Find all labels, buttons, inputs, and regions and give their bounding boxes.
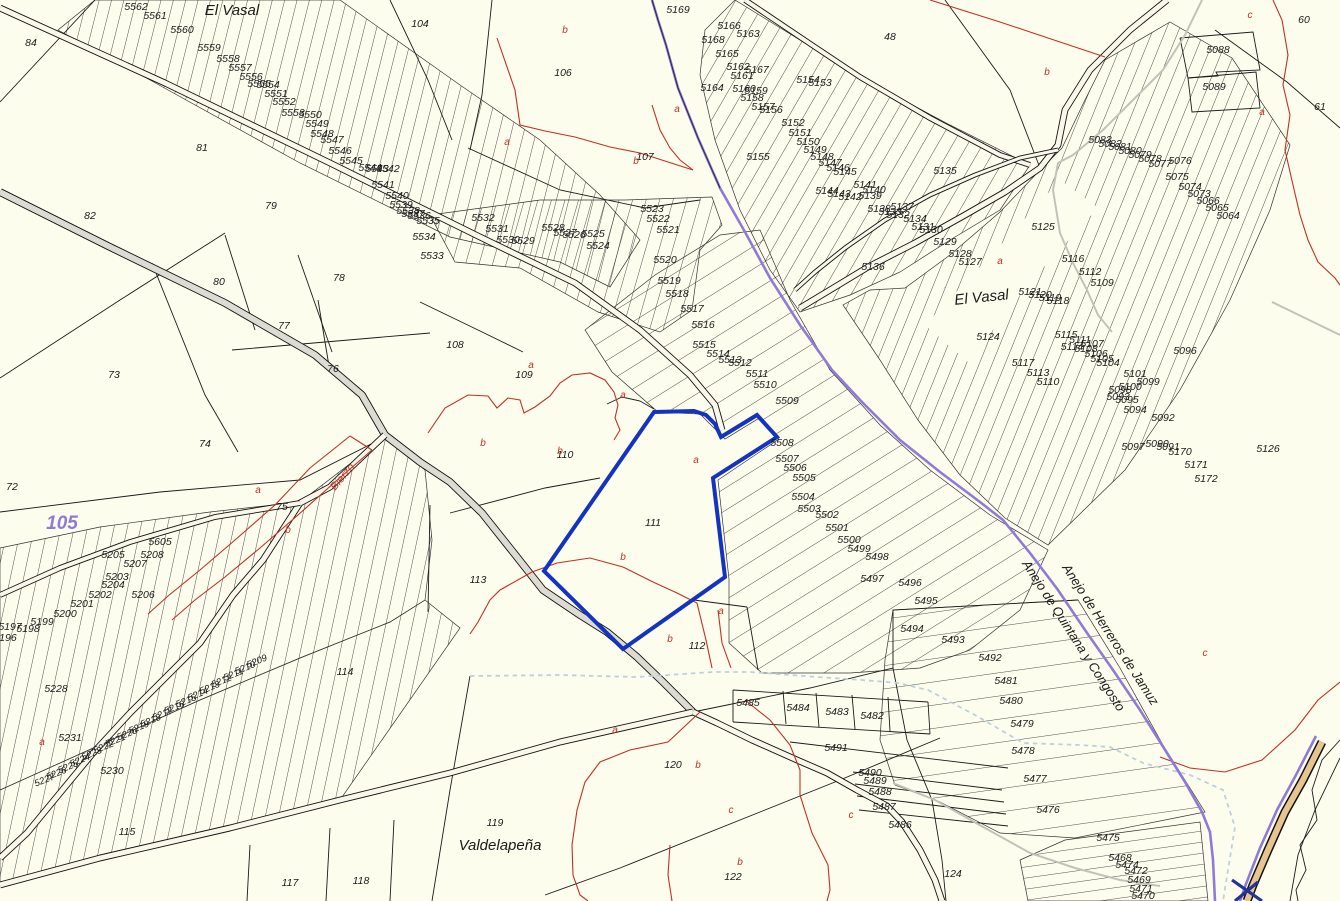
parcel-label-5495: 5495 (914, 595, 938, 607)
parcel-boundary-line (816, 693, 819, 727)
parcel-label-5064: 5064 (1216, 210, 1240, 222)
parcel-label-5156: 5156 (759, 104, 783, 116)
parcel-label-5090: 5090 (1145, 438, 1169, 450)
parcel-label-73: 73 (108, 369, 120, 381)
parcel-label-5230: 5230 (100, 765, 124, 777)
parcel-label-5205: 5205 (101, 549, 125, 561)
parcel-label-104: 104 (411, 18, 429, 30)
parcel-label-5168: 5168 (701, 34, 725, 46)
track-path (1272, 302, 1340, 335)
parcel-label-5529: 5529 (511, 235, 535, 247)
parcel-label-5118: 5118 (1047, 295, 1070, 307)
parcel-label-5561: 5561 (143, 10, 166, 22)
parcel-label-5517: 5517 (680, 303, 705, 315)
parcel-label-5096: 5096 (1173, 345, 1197, 357)
parcel-label-5228: 5228 (44, 683, 68, 695)
place-name-label: El Vasal (205, 2, 260, 19)
parcel-label-5481: 5481 (994, 675, 1017, 687)
parcel-boundary-line (1290, 758, 1340, 901)
parcel-label-5535: 5535 (416, 215, 440, 227)
parcel-label-5498: 5498 (865, 551, 889, 563)
parcel-label-5508: 5508 (770, 437, 794, 449)
parcel-boundary-line (232, 333, 430, 350)
parcel-boundary-line (390, 820, 394, 901)
subclass-boundary-line (652, 105, 693, 170)
parcel-label-5104: 5104 (1096, 357, 1120, 369)
parcel-label-5129: 5129 (933, 236, 957, 248)
parcel-label-122: 122 (724, 871, 742, 883)
parcel-label-5207: 5207 (123, 558, 148, 570)
parcel-label-5525: 5525 (581, 228, 605, 240)
parcel-label-61: 61 (1314, 101, 1326, 113)
parcel-label-84: 84 (25, 37, 37, 49)
subclass-letter-a: a (528, 360, 534, 371)
parcel-label-106: 106 (554, 67, 572, 79)
parcel-label-5510: 5510 (753, 379, 777, 391)
parcel-label-5164: 5164 (700, 82, 724, 94)
parcel-label-5477: 5477 (1023, 773, 1048, 785)
subclass-letter-a: a (997, 256, 1003, 267)
parcel-label-5130: 5130 (919, 224, 943, 236)
parcel-label-5501: 5501 (825, 522, 848, 534)
parcel-label-5497: 5497 (860, 573, 885, 585)
parcel-label-119: 119 (487, 817, 504, 829)
parcel-label-48: 48 (884, 31, 896, 43)
parcel-label-5116: 5116 (1062, 253, 1085, 265)
parcel-label-5560: 5560 (170, 24, 194, 36)
parcel-boundary-line (432, 676, 470, 901)
parcel-boundary-line (545, 738, 940, 895)
parcel-label-5076: 5076 (1168, 155, 1192, 167)
parcel-label-5126: 5126 (1256, 443, 1280, 455)
parcel-label-5516: 5516 (691, 319, 715, 331)
parcel-label-5504: 5504 (791, 491, 815, 503)
parcel-label-5088: 5088 (1206, 44, 1230, 56)
parcel-label-5502: 5502 (815, 509, 839, 521)
parcel-label-108: 108 (446, 339, 464, 351)
parcel-label-60: 60 (1298, 14, 1310, 26)
subclass-letter-a: a (693, 455, 699, 466)
parcel-label-5509: 5509 (775, 395, 799, 407)
parcel-label-5098: 5098 (1108, 384, 1132, 396)
parcel-label-5097: 5097 (1121, 441, 1146, 453)
subclass-letter-a: a (674, 104, 680, 115)
parcel-label-5231: 5231 (58, 732, 81, 744)
parcel-label-5171: 5171 (1184, 459, 1207, 471)
subclass-boundary-line (428, 373, 620, 440)
parcel-label-75: 75 (276, 501, 288, 513)
parcel-label-5161: 5161 (730, 70, 753, 82)
parcel-label-5520: 5520 (653, 254, 677, 266)
subclass-letter-b: b (695, 760, 701, 771)
subclass-letter-c: c (1248, 10, 1253, 21)
parcel-label-5485: 5485 (736, 697, 760, 709)
parcel-label-5491: 5491 (824, 742, 847, 754)
parcel-label-115: 115 (119, 826, 136, 838)
parcel-label-111: 111 (645, 517, 661, 529)
subclass-letter-b: b (620, 552, 626, 563)
parcel-label-5124: 5124 (976, 331, 1000, 343)
parcel-label-78: 78 (333, 272, 345, 284)
subclass-letter-b: b (480, 438, 486, 449)
parcel-label-5492: 5492 (978, 652, 1002, 664)
parcel-label-5494: 5494 (900, 623, 924, 635)
subclass-letter-c: c (849, 810, 854, 821)
parcel-label-5206: 5206 (131, 589, 155, 601)
parcel-label-77: 77 (278, 320, 291, 332)
parcel-label-5533: 5533 (420, 250, 444, 262)
parcel-label-120: 120 (664, 759, 682, 771)
map-viewport[interactable]: 8410410610781827980787776737472751081091… (0, 0, 1340, 901)
parcel-label-5487: 5487 (872, 801, 897, 813)
subclass-boundary-line (350, 436, 372, 450)
subclass-letter-a: a (612, 725, 618, 736)
parcel-label-76: 76 (327, 363, 339, 375)
parcel-label-5137: 5137 (890, 201, 915, 213)
parcel-label-5519: 5519 (657, 275, 681, 287)
subclass-letter-b: b (633, 156, 639, 167)
parcel-label-107: 107 (636, 151, 655, 163)
parcel-label-82: 82 (84, 210, 96, 222)
parcel-label-5101: 5101 (1123, 368, 1146, 380)
parcel-label-5480: 5480 (999, 695, 1023, 707)
parcel-label-5478: 5478 (1011, 745, 1035, 757)
parcel-label-5488: 5488 (868, 786, 892, 798)
parcel-label-5110: 5110 (1037, 376, 1060, 388)
parcel-label-5534: 5534 (412, 231, 436, 243)
subclass-letter-a: a (620, 390, 626, 401)
parcel-label-5524: 5524 (586, 240, 610, 252)
subclass-letter-c: c (1203, 648, 1208, 659)
parcel-label-5196: 5196 (0, 632, 17, 644)
subclass-letter-a: a (718, 606, 724, 617)
parcel-label-5135: 5135 (933, 165, 957, 177)
parcel-label-5521: 5521 (656, 224, 679, 236)
subclass-letter-b: b (557, 446, 563, 457)
parcel-boundary-line (852, 695, 855, 729)
parcel-label-117: 117 (282, 877, 300, 889)
parcel-label-5493: 5493 (941, 634, 965, 646)
parcel-label-5155: 5155 (746, 151, 770, 163)
parcel-label-79: 79 (265, 200, 277, 212)
parcel-label-5127: 5127 (958, 256, 983, 268)
place-name-label: 105 (46, 513, 78, 534)
parcel-label-5484: 5484 (786, 702, 810, 714)
subclass-letter-a: a (1259, 107, 1265, 118)
parcel-boundary-line (326, 828, 330, 901)
subclass-letter-b: b (737, 857, 743, 868)
parcel-label-5109: 5109 (1090, 277, 1114, 289)
parcel-label-114: 114 (337, 666, 354, 678)
parcel-label-5483: 5483 (825, 706, 849, 718)
parcel-label-5125: 5125 (1031, 221, 1055, 233)
parcel-label-118: 118 (353, 875, 370, 887)
parcel-label-5505: 5505 (792, 472, 816, 484)
parcel-boundary-line (0, 233, 225, 378)
parcel-label-5145: 5145 (833, 166, 857, 178)
parcel-boundary-line (298, 255, 332, 352)
subclass-letter-a: a (504, 137, 510, 148)
parcel-label-5542: 5542 (376, 163, 400, 175)
subclass-letter-b: b (285, 525, 291, 536)
parcel-label-5136: 5136 (861, 261, 885, 273)
parcel-label-5551: 5551 (264, 88, 287, 100)
parcel-label-5482: 5482 (860, 710, 884, 722)
parcel-label-5172: 5172 (1194, 473, 1218, 485)
parcel-label-113: 113 (470, 574, 487, 586)
parcel-label-5163: 5163 (736, 28, 760, 40)
parcel-label-5605: 5605 (148, 536, 172, 548)
parcel-label-72: 72 (6, 481, 18, 493)
parcel-label-5486: 5486 (888, 819, 912, 831)
subclass-letter-a: a (39, 737, 45, 748)
parcel-label-5476: 5476 (1036, 804, 1060, 816)
parcel-boundary-line (420, 302, 523, 352)
parcel-label-5479: 5479 (1010, 718, 1034, 730)
parcel-label-5165: 5165 (715, 48, 739, 60)
subclass-boundary-line (668, 845, 672, 901)
parcel-label-5475: 5475 (1096, 832, 1120, 844)
parcel-label-5200: 5200 (53, 608, 77, 620)
parcel-label-5170: 5170 (1168, 446, 1192, 458)
parcel-label-124: 124 (944, 868, 962, 880)
subclass-boundary-line (930, 0, 1105, 57)
parcel-label-80: 80 (213, 276, 225, 288)
parcel-label-5139: 5139 (858, 190, 882, 202)
parcel-label-5089: 5089 (1202, 81, 1226, 93)
subclass-letter-c: c (729, 805, 734, 816)
subclass-letter-a: a (255, 485, 261, 496)
parcel-label-74: 74 (199, 438, 211, 450)
subclass-boundary-line (572, 712, 700, 901)
parcel-label-5518: 5518 (665, 288, 689, 300)
parcel-label-5092: 5092 (1151, 412, 1175, 424)
parcel-label-112: 112 (689, 640, 706, 652)
place-name-label: Valdelapeña (459, 837, 542, 854)
parcel-label-5496: 5496 (898, 577, 922, 589)
parcel-label-5470: 5470 (1131, 890, 1155, 901)
subclass-letter-b: b (1044, 67, 1050, 78)
cadastral-map: 8410410610781827980787776737472751081091… (0, 0, 1340, 901)
subclass-letter-b: b (667, 634, 673, 645)
parcel-label-81: 81 (196, 142, 208, 154)
subclass-letter-b: b (562, 25, 568, 36)
subclass-boundary-line (745, 700, 830, 901)
parcel-boundary-line (247, 845, 250, 901)
parcel-label-5169: 5169 (666, 4, 690, 16)
parcel-label-5153: 5153 (808, 77, 832, 89)
